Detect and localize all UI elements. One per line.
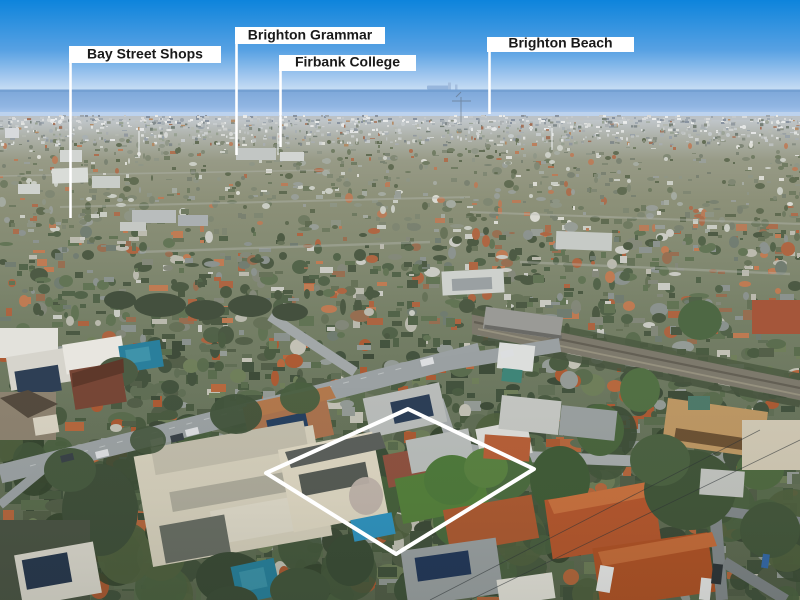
svg-text:Brighton Beach: Brighton Beach [508, 35, 612, 51]
svg-text:Firbank College: Firbank College [295, 54, 400, 70]
svg-text:Brighton Grammar: Brighton Grammar [248, 27, 373, 43]
svg-text:Bay Street Shops: Bay Street Shops [87, 46, 203, 62]
